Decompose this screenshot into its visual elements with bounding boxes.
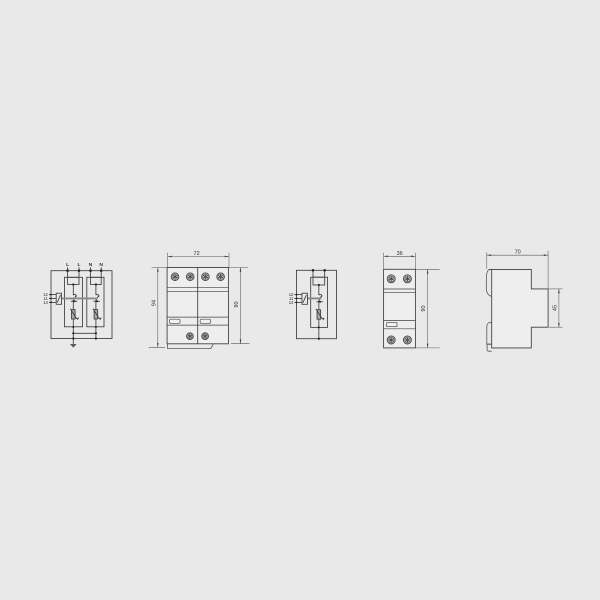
svg-text:72: 72 [194,251,200,257]
svg-text:90: 90 [421,305,427,311]
svg-text:70: 70 [515,250,521,256]
svg-text:14: 14 [43,300,48,305]
svg-text:36: 36 [397,251,403,257]
svg-text:14: 14 [289,300,294,305]
svg-text:90: 90 [234,301,240,307]
svg-text:45: 45 [552,305,558,311]
svg-text:94: 94 [151,300,157,306]
